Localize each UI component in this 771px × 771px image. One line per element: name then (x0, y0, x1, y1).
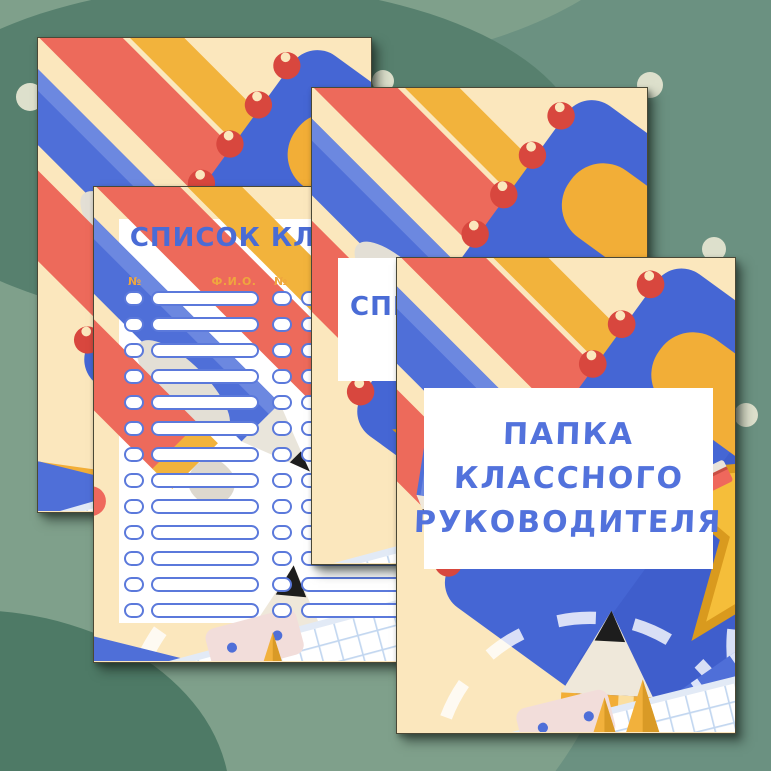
row-number-slot (272, 473, 292, 488)
row-number-slot (272, 603, 292, 618)
row-name-slot (151, 577, 259, 592)
row-name-slot (151, 421, 259, 436)
row-number-slot (272, 291, 292, 306)
column-header-no-right: № (274, 275, 288, 288)
page-cover[interactable]: ПАПКА КЛАССНОГО РУКОВОДИТЕЛЯ (396, 257, 736, 734)
cone-icon (515, 697, 694, 732)
row-number-slot (124, 603, 144, 618)
cover-title-line2: КЛАССНОГО (453, 464, 684, 494)
donut-shape-icon (720, 672, 735, 732)
row-name-slot (151, 499, 259, 514)
row-number-slot (124, 525, 144, 540)
cover-title: ПАПКА КЛАССНОГО РУКОВОДИТЕЛЯ (424, 388, 713, 569)
row-name-slot (151, 447, 259, 462)
row-number-slot (124, 421, 144, 436)
column-header-no-left: № (128, 275, 142, 288)
row-number-slot (124, 395, 144, 410)
row-name-slot (301, 603, 409, 618)
row-number-slot (124, 499, 144, 514)
dashed-circle-doodle (732, 493, 735, 733)
row-name-slot (151, 525, 259, 540)
graph-paper-icon (403, 657, 735, 733)
row-number-slot (124, 473, 144, 488)
cover-title-line1: ПАПКА (502, 420, 634, 450)
row-name-slot (151, 551, 259, 566)
list-row (124, 603, 409, 618)
row-number-slot (124, 291, 144, 306)
row-number-slot (272, 343, 292, 358)
row-number-slot (124, 447, 144, 462)
row-number-slot (272, 577, 292, 592)
list-row (124, 577, 409, 592)
mockup-canvas: СПИСОК КЛАССА № Ф.И.О. № СПИСОК (0, 0, 771, 771)
row-number-slot (272, 421, 292, 436)
row-name-slot (151, 291, 259, 306)
row-number-slot (272, 499, 292, 514)
row-number-slot (272, 447, 292, 462)
row-number-slot (272, 317, 292, 332)
row-number-slot (272, 525, 292, 540)
red-dot-icon (94, 486, 106, 516)
row-number-slot (124, 317, 144, 332)
row-name-slot (151, 317, 259, 332)
pencil-cup-icon (609, 707, 735, 732)
dashed-circle-doodle (436, 618, 735, 732)
row-name-slot (151, 473, 259, 488)
row-number-slot (272, 395, 292, 410)
cover-title-line3: РУКОВОДИТЕЛЯ (414, 508, 723, 538)
row-number-slot (272, 551, 292, 566)
cone-icon (493, 679, 735, 732)
row-number-slot (124, 551, 144, 566)
blue-ruler-icon (499, 623, 735, 732)
row-number-slot (272, 369, 292, 384)
row-name-slot (151, 603, 259, 618)
row-number-slot (124, 343, 144, 358)
square-ruler-icon (94, 630, 394, 661)
pencil-icon (541, 608, 657, 732)
row-name-slot (151, 343, 259, 358)
percent-badge-icon (717, 693, 735, 732)
row-number-slot (124, 369, 144, 384)
cone-icon (191, 632, 355, 661)
row-name-slot (301, 577, 409, 592)
row-name-slot (151, 369, 259, 384)
row-name-slot (151, 395, 259, 410)
row-number-slot (124, 577, 144, 592)
